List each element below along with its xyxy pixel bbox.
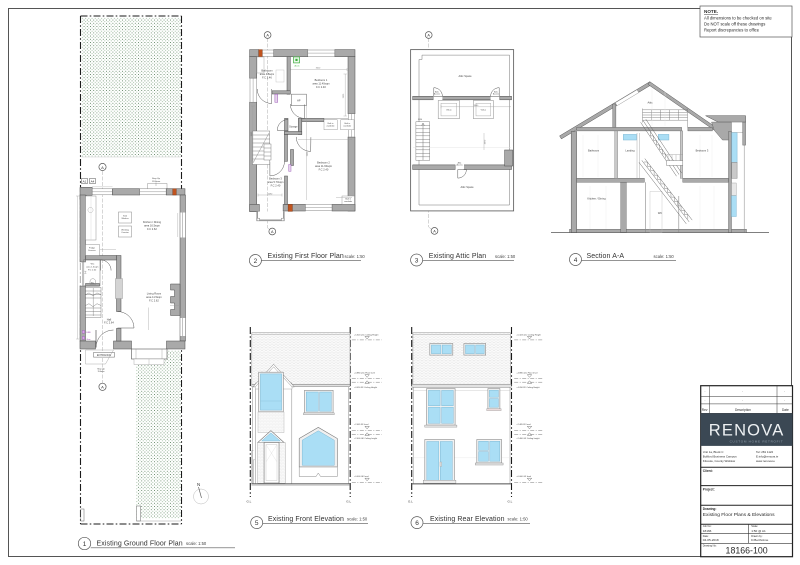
svg-text:18166-100: 18166-100 — [726, 545, 768, 555]
svg-text:area 1.5sqm: area 1.5sqm — [86, 266, 98, 269]
svg-text:Attic Space: Attic Space — [458, 74, 472, 78]
svg-text:Bedroom 2: Bedroom 2 — [317, 161, 330, 165]
svg-text:A: A — [101, 385, 104, 390]
svg-text:4: 4 — [574, 257, 578, 264]
svg-text:+0.000 GF level: +0.000 GF level — [516, 476, 531, 478]
svg-text:-: - — [784, 390, 785, 394]
svg-text:Washer: Washer — [121, 217, 128, 220]
svg-text:area 4.8sqm: area 4.8sqm — [260, 72, 274, 76]
svg-text:A4: A4 — [91, 179, 95, 183]
svg-text:Attic: Attic — [647, 100, 653, 104]
svg-text:+4.880 attic Floor level: +4.880 attic Floor level — [354, 372, 376, 375]
svg-text:scale: 1:50: scale: 1:50 — [186, 541, 207, 546]
svg-text:+4.050 FF Ceiling Height: +4.050 FF Ceiling Height — [516, 386, 539, 389]
svg-text:Unit 1a, Block C: Unit 1a, Block C — [703, 450, 724, 454]
svg-text:G.L: G.L — [508, 500, 513, 504]
svg-text:scale: 1:50: scale: 1:50 — [495, 254, 516, 259]
svg-text:G.L: G.L — [346, 500, 351, 504]
svg-text:Existing Floor Plans & Elevati: Existing Floor Plans & Elevations — [703, 512, 775, 518]
svg-text:Living Room: Living Room — [147, 292, 161, 296]
svg-text:Bedroom 1: Bedroom 1 — [315, 78, 328, 82]
svg-text:A: A — [271, 230, 274, 234]
svg-text:Description: Description — [735, 408, 751, 412]
svg-text:Drawing:: Drawing: — [703, 507, 717, 511]
svg-text:Attic Space: Attic Space — [460, 185, 474, 189]
svg-text:Bathroom: Bathroom — [261, 69, 272, 73]
svg-text:2: 2 — [254, 258, 258, 265]
svg-text:+5.324 attic Ceiling Height: +5.324 attic Ceiling Height — [354, 333, 379, 336]
svg-text:F.C 2.64: F.C 2.64 — [104, 321, 114, 325]
svg-text:N: N — [197, 482, 200, 487]
svg-text:+2.400 GF Ceiling height: +2.400 GF Ceiling height — [354, 437, 377, 440]
svg-text:area 11.5sqm: area 11.5sqm — [146, 295, 162, 299]
svg-text:Working: Working — [121, 229, 129, 232]
svg-text:150mm: 150mm — [98, 371, 105, 373]
svg-text:CUSTOM HOME RETROFIT: CUSTOM HOME RETROFIT — [730, 440, 784, 444]
svg-text:Bedroom 3: Bedroom 3 — [696, 149, 709, 153]
svg-text:+5.324 attic Ceiling Height: +5.324 attic Ceiling Height — [516, 333, 541, 336]
svg-text:F.C 2.02: F.C 2.02 — [88, 269, 97, 271]
svg-text:+4.880 attic Floor level: +4.880 attic Floor level — [516, 372, 538, 375]
svg-text:Date: Date — [782, 408, 789, 412]
svg-text:area 16.5sqm: area 16.5sqm — [144, 223, 160, 227]
svg-text:Tel: 281 1122: Tel: 281 1122 — [756, 450, 774, 454]
svg-text:wardrobe: wardrobe — [344, 200, 352, 203]
svg-text:scale: 1:50: scale: 1:50 — [654, 254, 675, 259]
svg-text:-: - — [742, 390, 743, 394]
svg-text:Step Up: Step Up — [152, 177, 161, 180]
svg-text:+0.000 GF level: +0.000 GF level — [354, 476, 369, 478]
svg-text:F.C 2.40: F.C 2.40 — [319, 167, 329, 171]
svg-text:wardrobe: wardrobe — [343, 124, 351, 127]
svg-text:A: A — [433, 230, 436, 234]
svg-text:A: A — [101, 165, 104, 170]
svg-text:area 11.60sqm: area 11.60sqm — [315, 164, 332, 168]
svg-text:Landing: Landing — [625, 149, 635, 153]
svg-text:Kilcoole, County Wicklow: Kilcoole, County Wicklow — [703, 459, 736, 463]
svg-text:Job No:: Job No: — [703, 525, 712, 528]
svg-text:-: - — [705, 390, 706, 394]
svg-text:RENOVA: RENOVA — [709, 422, 785, 440]
svg-text:F.C 2.62: F.C 2.62 — [149, 298, 159, 302]
svg-text:Existing Rear Elevation: Existing Rear Elevation — [430, 516, 505, 523]
svg-text:5: 5 — [255, 520, 259, 527]
svg-text:18166: 18166 — [703, 529, 712, 533]
svg-text:scale: 1:50: scale: 1:50 — [345, 254, 366, 259]
svg-text:area 5.70sqm: area 5.70sqm — [268, 180, 284, 184]
svg-text:Bedroom 3: Bedroom 3 — [269, 177, 282, 181]
svg-text:F.C 2.62: F.C 2.62 — [147, 227, 157, 231]
svg-text:Gas: Gas — [87, 339, 91, 341]
svg-text:Existing First Floor Plan: Existing First Floor Plan — [268, 253, 344, 260]
svg-text:Counter: Counter — [121, 231, 129, 234]
svg-text:3150: 3150 — [418, 119, 422, 121]
svg-text:Existing Ground Floor Plan: Existing Ground Floor Plan — [97, 541, 183, 548]
svg-text:Report discrepancies to office: Report discrepancies to office — [704, 28, 760, 33]
svg-text:Velux: Velux — [446, 110, 452, 112]
svg-text:F.C 2.40: F.C 2.40 — [271, 183, 281, 187]
svg-text:Access: Access — [493, 93, 499, 96]
svg-text:Access: Access — [456, 164, 462, 167]
svg-text:+2.465 FF level: +2.465 FF level — [516, 424, 531, 426]
svg-text:wardrobe: wardrobe — [327, 124, 335, 127]
svg-text:E:info@renova.ie: E:info@renova.ie — [756, 455, 779, 459]
svg-text:Existing Attic Plan: Existing Attic Plan — [429, 253, 487, 260]
svg-text:04-05-2018: 04-05-2018 — [703, 538, 719, 542]
svg-text:+4.050 FF Ceiling Height: +4.050 FF Ceiling Height — [354, 386, 377, 389]
svg-text:Existing Front Elevation: Existing Front Elevation — [268, 516, 344, 523]
svg-text:NOTE.: NOTE. — [704, 9, 718, 14]
svg-text:+2.400 GF Ceiling height: +2.400 GF Ceiling height — [516, 437, 539, 440]
svg-text:Bathroom: Bathroom — [588, 149, 599, 153]
svg-text:Client:: Client: — [703, 469, 713, 473]
svg-text:Access: Access — [434, 93, 440, 96]
svg-text:-: - — [784, 398, 785, 402]
svg-text:F.C 2.40: F.C 2.40 — [316, 85, 326, 89]
svg-text:Kitchen / Dining: Kitchen / Dining — [587, 197, 606, 201]
svg-text:area 11.40sqm: area 11.40sqm — [312, 81, 329, 85]
svg-text:A: A — [427, 34, 430, 38]
svg-text:-: - — [742, 398, 743, 402]
svg-text:Bullford Business Campus: Bullford Business Campus — [703, 455, 737, 459]
svg-text:WC: WC — [91, 264, 95, 266]
svg-text:scale: 1:50: scale: 1:50 — [508, 517, 529, 522]
svg-text:F.C 2.46: F.C 2.46 — [262, 75, 272, 79]
svg-text:D.Bertholme: D.Bertholme — [751, 538, 768, 542]
svg-text:-: - — [705, 398, 706, 402]
svg-text:HP: HP — [297, 100, 301, 103]
svg-text:1: 1 — [83, 541, 87, 548]
svg-text:Rev: Rev — [702, 408, 708, 412]
svg-text:G.L: G.L — [247, 500, 252, 504]
svg-text:A1: A1 — [83, 179, 87, 183]
svg-text:Storage: Storage — [289, 126, 298, 129]
svg-text:+2.465 FF level: +2.465 FF level — [354, 424, 369, 426]
svg-text:1:50 @ A1: 1:50 @ A1 — [751, 529, 766, 533]
svg-text:Project:: Project: — [703, 488, 715, 492]
svg-text:WC: WC — [658, 211, 662, 215]
svg-text:Freezer: Freezer — [88, 249, 95, 252]
svg-text:ESB: ESB — [86, 332, 91, 334]
svg-text:Fridge: Fridge — [89, 247, 96, 250]
svg-text:Kitchen / Dining: Kitchen / Dining — [143, 220, 162, 224]
svg-text:www.renova.ie: www.renova.ie — [756, 459, 775, 463]
svg-text:Drawing No:: Drawing No: — [703, 545, 717, 548]
svg-text:scale: 1:50: scale: 1:50 — [347, 517, 368, 522]
svg-text:All dimensions to be checked o: All dimensions to be checked on site — [704, 16, 772, 21]
svg-text:ENTRANCE: ENTRANCE — [97, 353, 112, 357]
svg-text:Velux: Velux — [481, 110, 487, 112]
svg-text:6: 6 — [415, 520, 419, 527]
svg-text:G.L: G.L — [408, 500, 413, 504]
svg-text:Section A-A: Section A-A — [587, 253, 625, 260]
svg-text:3: 3 — [415, 257, 419, 264]
svg-text:Alarm: Alarm — [295, 65, 300, 68]
svg-text:Scale:: Scale: — [751, 525, 758, 528]
svg-text:Do NOT scale off these drawing: Do NOT scale off these drawings — [704, 22, 765, 27]
